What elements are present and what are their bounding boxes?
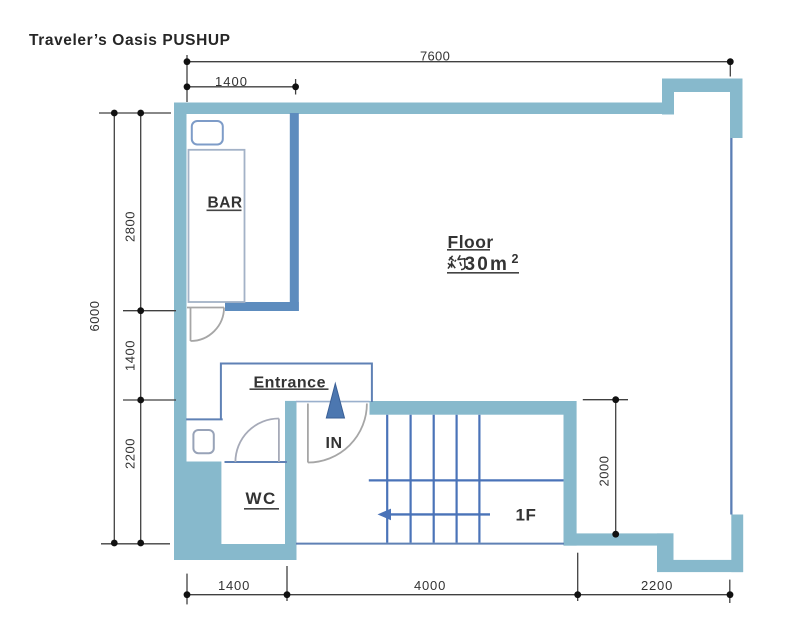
svg-text:Traveler’s Oasis PUSHUP: Traveler’s Oasis PUSHUP <box>29 32 231 49</box>
svg-text:IN: IN <box>326 435 343 452</box>
svg-text:1400: 1400 <box>123 340 138 371</box>
svg-text:2200: 2200 <box>641 578 673 593</box>
svg-text:7600: 7600 <box>420 48 450 63</box>
svg-text:WC: WC <box>246 489 277 508</box>
svg-text:30m: 30m <box>465 254 510 275</box>
svg-text:1F: 1F <box>516 506 537 525</box>
svg-text:2000: 2000 <box>597 456 612 487</box>
svg-text:1400: 1400 <box>215 74 248 89</box>
svg-text:2: 2 <box>512 252 519 266</box>
svg-text:2800: 2800 <box>123 211 138 242</box>
svg-text:6000: 6000 <box>87 301 102 332</box>
svg-text:2200: 2200 <box>123 438 138 469</box>
svg-text:1400: 1400 <box>218 578 250 593</box>
svg-text:4000: 4000 <box>414 578 446 593</box>
svg-text:BAR: BAR <box>208 195 243 212</box>
